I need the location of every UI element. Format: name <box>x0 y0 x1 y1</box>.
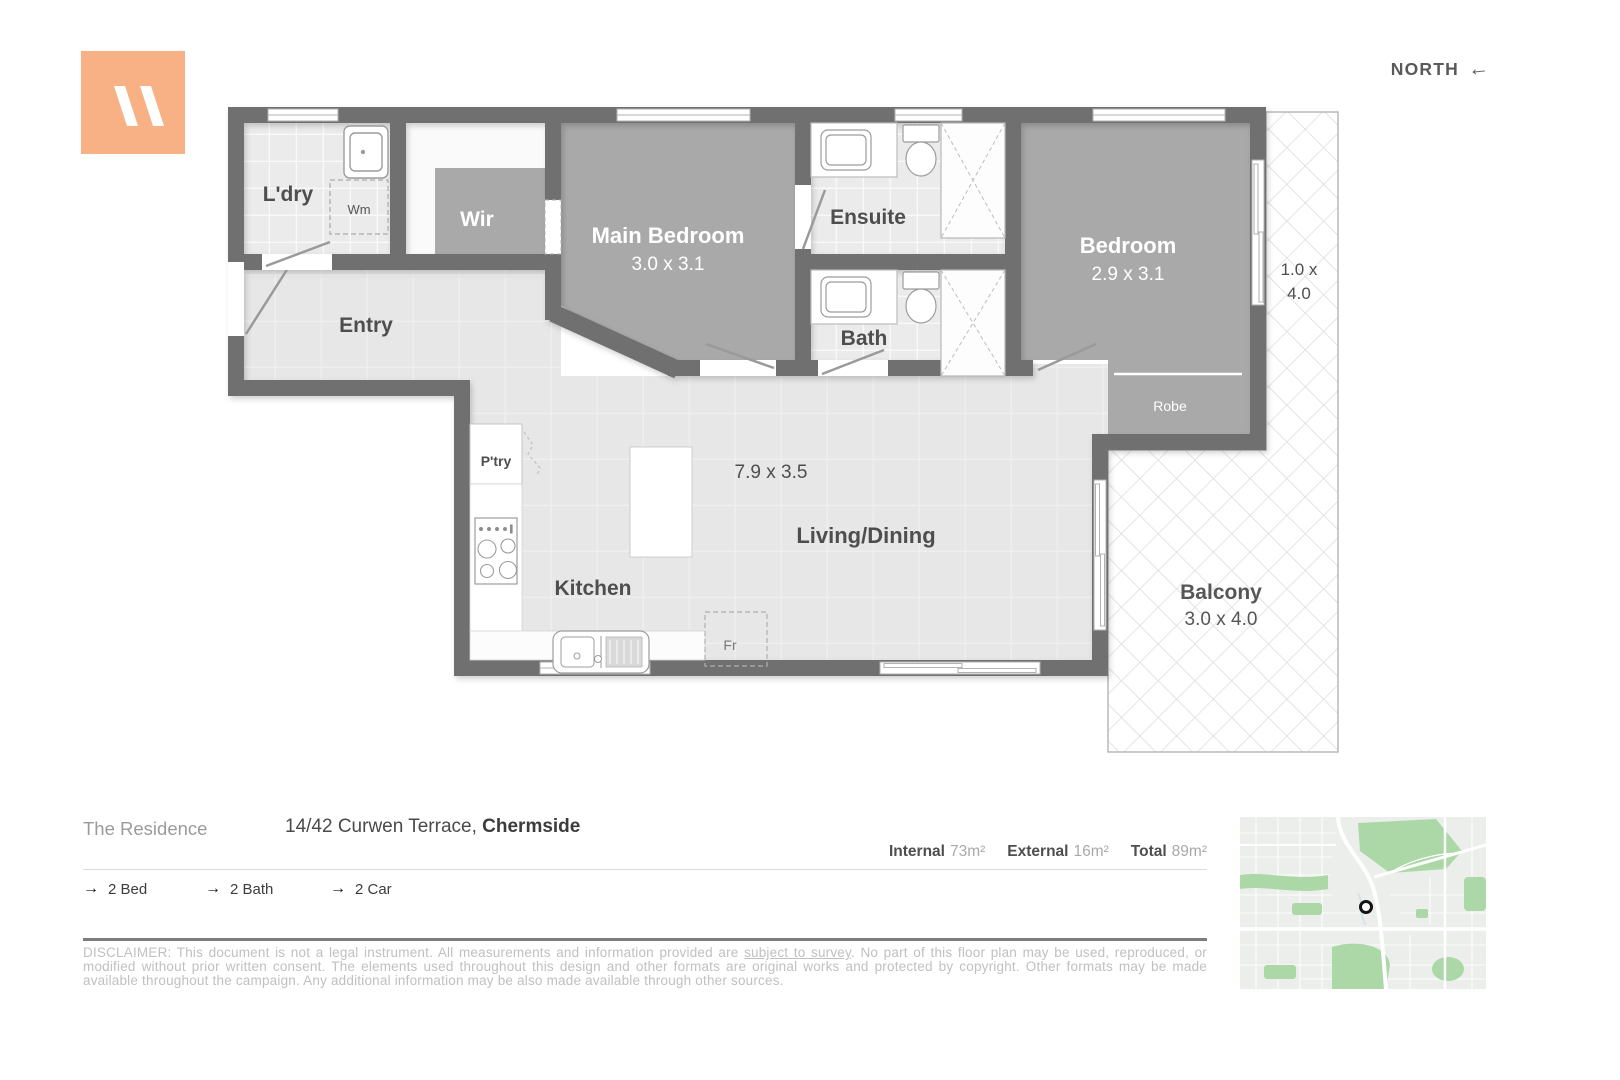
room-dims-main-bedroom: 3.0 x 3.1 <box>632 254 705 275</box>
map-marker-icon <box>1361 902 1372 913</box>
room-label-wm: Wm <box>347 202 370 217</box>
room-label-bedroom: Bedroom <box>1080 233 1177 258</box>
feature-beds: →2 Bed <box>83 880 147 898</box>
kitchen-sink-icon <box>553 631 649 673</box>
room-label-ldry: L'dry <box>263 183 314 206</box>
feature-list: →2 Bed →2 Bath →2 Car <box>83 880 583 904</box>
room-label-living: Living/Dining <box>796 523 935 548</box>
island-bench <box>630 447 692 557</box>
room-dims-living: 7.9 x 3.5 <box>735 462 808 483</box>
room-label-entry: Entry <box>339 314 393 337</box>
room-label-wir: Wir <box>460 208 494 231</box>
north-indicator: NORTH ← <box>1391 57 1489 81</box>
area-internal: Internal73m² <box>889 843 985 861</box>
side-balcony-dims-2: 4.0 <box>1287 284 1311 303</box>
north-label: NORTH <box>1391 59 1459 80</box>
cooktop-icon <box>475 518 517 584</box>
brand-logo-icon <box>81 51 185 154</box>
room-label-fridge: Fr <box>723 637 737 653</box>
footer: The Residence 14/42 Curwen Terrace, Cher… <box>83 810 1207 1010</box>
locality-map <box>1240 817 1486 989</box>
feature-arrow-icon: → <box>83 880 99 898</box>
feature-baths: →2 Bath <box>205 880 273 898</box>
room-label-pantry: P'try <box>481 453 512 469</box>
area-total: Total89m² <box>1131 843 1207 861</box>
brand-name: The Residence <box>83 818 207 840</box>
feature-cars: →2 Car <box>330 880 392 898</box>
disclaimer-text: DISCLAIMER: This document is not a legal… <box>83 946 1207 988</box>
room-label-bath: Bath <box>841 327 888 350</box>
feature-arrow-icon: → <box>330 880 346 898</box>
north-arrow-icon: ← <box>1467 56 1490 82</box>
laundry-sink <box>344 126 388 178</box>
divider <box>83 869 1207 870</box>
floor-plan: L'dry Wm Wir Main Bedroom 3.0 x 3.1 Ensu… <box>224 104 1344 756</box>
room-label-kitchen: Kitchen <box>554 577 631 600</box>
room-label-robe: Robe <box>1153 398 1187 414</box>
subject-to-survey-link: subject to survey <box>744 945 851 960</box>
area-summary: Internal73m² External16m² Total89m² <box>889 843 1207 861</box>
room-label-balcony: Balcony <box>1180 581 1262 604</box>
address-suburb: Chermside <box>482 816 580 837</box>
room-dims-balcony: 3.0 x 4.0 <box>1185 609 1258 630</box>
room-label-main-bedroom: Main Bedroom <box>592 223 745 248</box>
room-dims-bedroom: 2.9 x 3.1 <box>1092 264 1165 285</box>
room-label-ensuite: Ensuite <box>830 206 906 229</box>
area-external: External16m² <box>1007 843 1109 861</box>
map-image <box>1240 817 1486 989</box>
property-address: 14/42 Curwen Terrace, Chermside <box>285 816 580 838</box>
side-balcony-dims-1: 1.0 x <box>1281 260 1318 279</box>
address-street: 14/42 Curwen Terrace, <box>285 816 482 837</box>
brand-logo <box>81 51 185 154</box>
divider-heavy <box>83 938 1207 941</box>
feature-arrow-icon: → <box>205 880 221 898</box>
